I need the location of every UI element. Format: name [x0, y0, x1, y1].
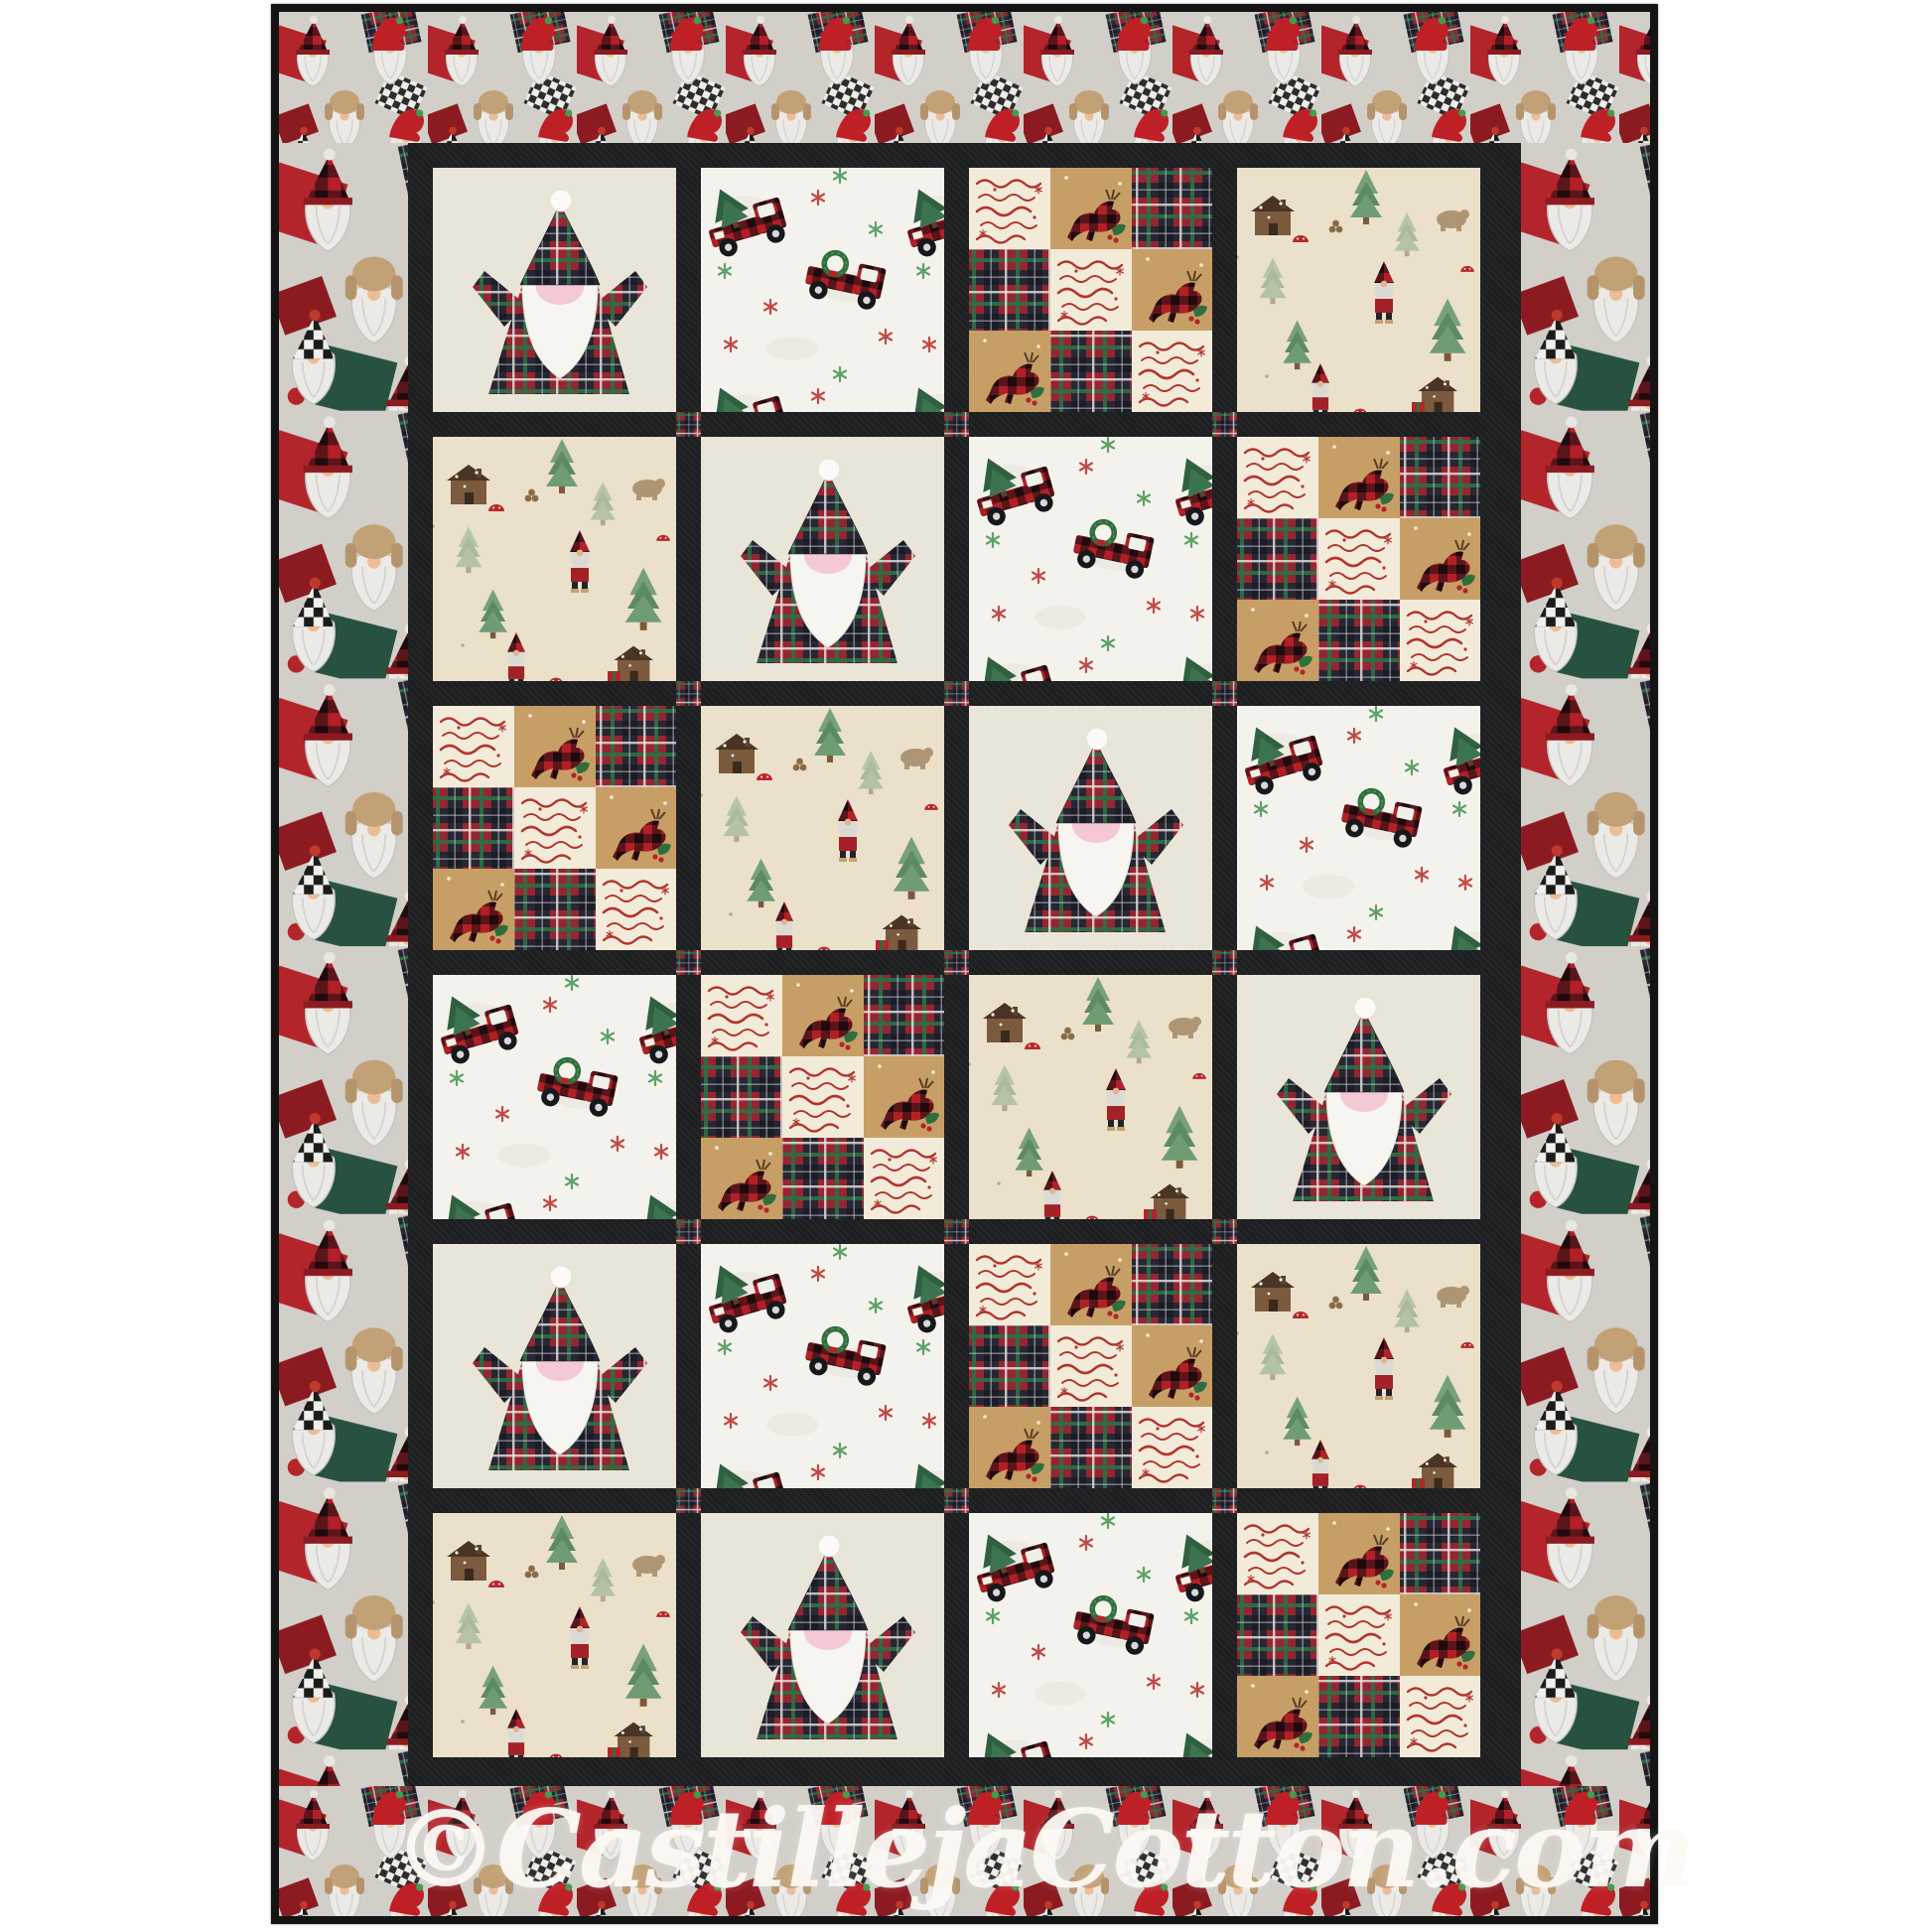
quilt-block-patchwork — [1237, 437, 1480, 681]
quilt-block-trucks — [701, 1244, 944, 1488]
quilt-block-trucks — [969, 1513, 1212, 1757]
gnome-border-left — [279, 143, 408, 1786]
sashing-cornerstone — [1212, 1488, 1237, 1513]
gnome-border-right — [1521, 143, 1650, 1786]
quilt: ©CastillejaCotton.com — [271, 4, 1658, 1924]
quilt-block-gnome-scene — [433, 1513, 676, 1757]
sashing-cornerstone — [676, 950, 701, 975]
quilt-block-gnome-scene — [701, 706, 944, 950]
sashing-cornerstone — [1212, 950, 1237, 975]
sashing-cornerstone — [944, 681, 969, 706]
sashing-frame — [408, 143, 1521, 1786]
quilt-block-patchwork — [969, 168, 1212, 412]
quilt-photo: ©CastillejaCotton.com — [0, 0, 1932, 1932]
sashing-cornerstone — [676, 681, 701, 706]
quilt-block-gnome-applique — [701, 1513, 944, 1757]
quilt-block-gnome-applique — [1237, 975, 1480, 1219]
sashing-cornerstone — [676, 412, 701, 437]
quilt-block-gnome-scene — [1237, 1244, 1480, 1488]
quilt-block-gnome-applique — [701, 437, 944, 681]
quilt-block-trucks — [969, 437, 1212, 681]
gnome-border-bottom — [279, 1786, 1650, 1916]
sashing-cornerstone — [1212, 1219, 1237, 1244]
sashing-cornerstone — [944, 1488, 969, 1513]
quilt-block-gnome-scene — [433, 437, 676, 681]
sashing-cornerstone — [1212, 681, 1237, 706]
sashing-cornerstone — [676, 1488, 701, 1513]
quilt-block-patchwork — [433, 706, 676, 950]
sashing-cornerstone — [676, 1219, 701, 1244]
quilt-block-patchwork — [701, 975, 944, 1219]
quilt-block-gnome-scene — [1237, 168, 1480, 412]
sashing-cornerstone — [944, 412, 969, 437]
quilt-block-trucks — [1237, 706, 1480, 950]
quilt-block-gnome-scene — [969, 975, 1212, 1219]
sashing-cornerstone — [944, 950, 969, 975]
quilt-block-trucks — [701, 168, 944, 412]
quilt-block-patchwork — [1237, 1513, 1480, 1757]
quilt-block-gnome-applique — [969, 706, 1212, 950]
quilt-block-patchwork — [969, 1244, 1212, 1488]
quilt-block-trucks — [433, 975, 676, 1219]
gnome-border-top — [279, 12, 1650, 143]
sashing-cornerstone — [944, 1219, 969, 1244]
sashing-cornerstone — [1212, 412, 1237, 437]
quilt-block-gnome-applique — [433, 1244, 676, 1488]
quilt-block-gnome-applique — [433, 168, 676, 412]
